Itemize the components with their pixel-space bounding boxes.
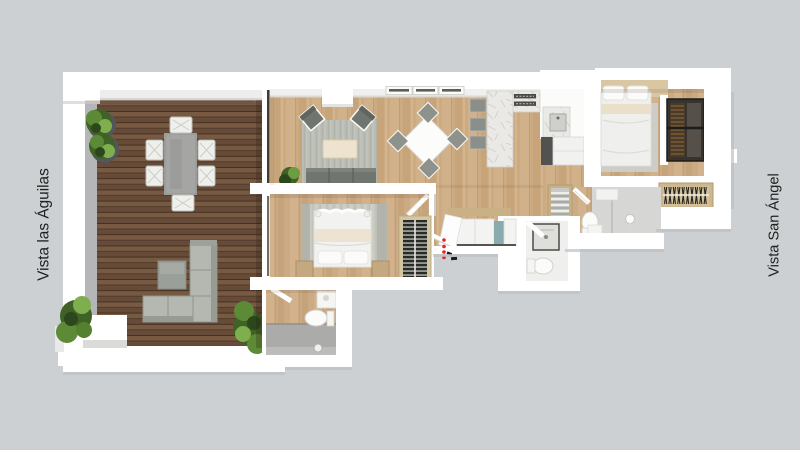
svg-text:Vista San Ángel: Vista San Ángel <box>766 173 783 277</box>
svg-text:Vista las Águilas: Vista las Águilas <box>36 168 53 281</box>
